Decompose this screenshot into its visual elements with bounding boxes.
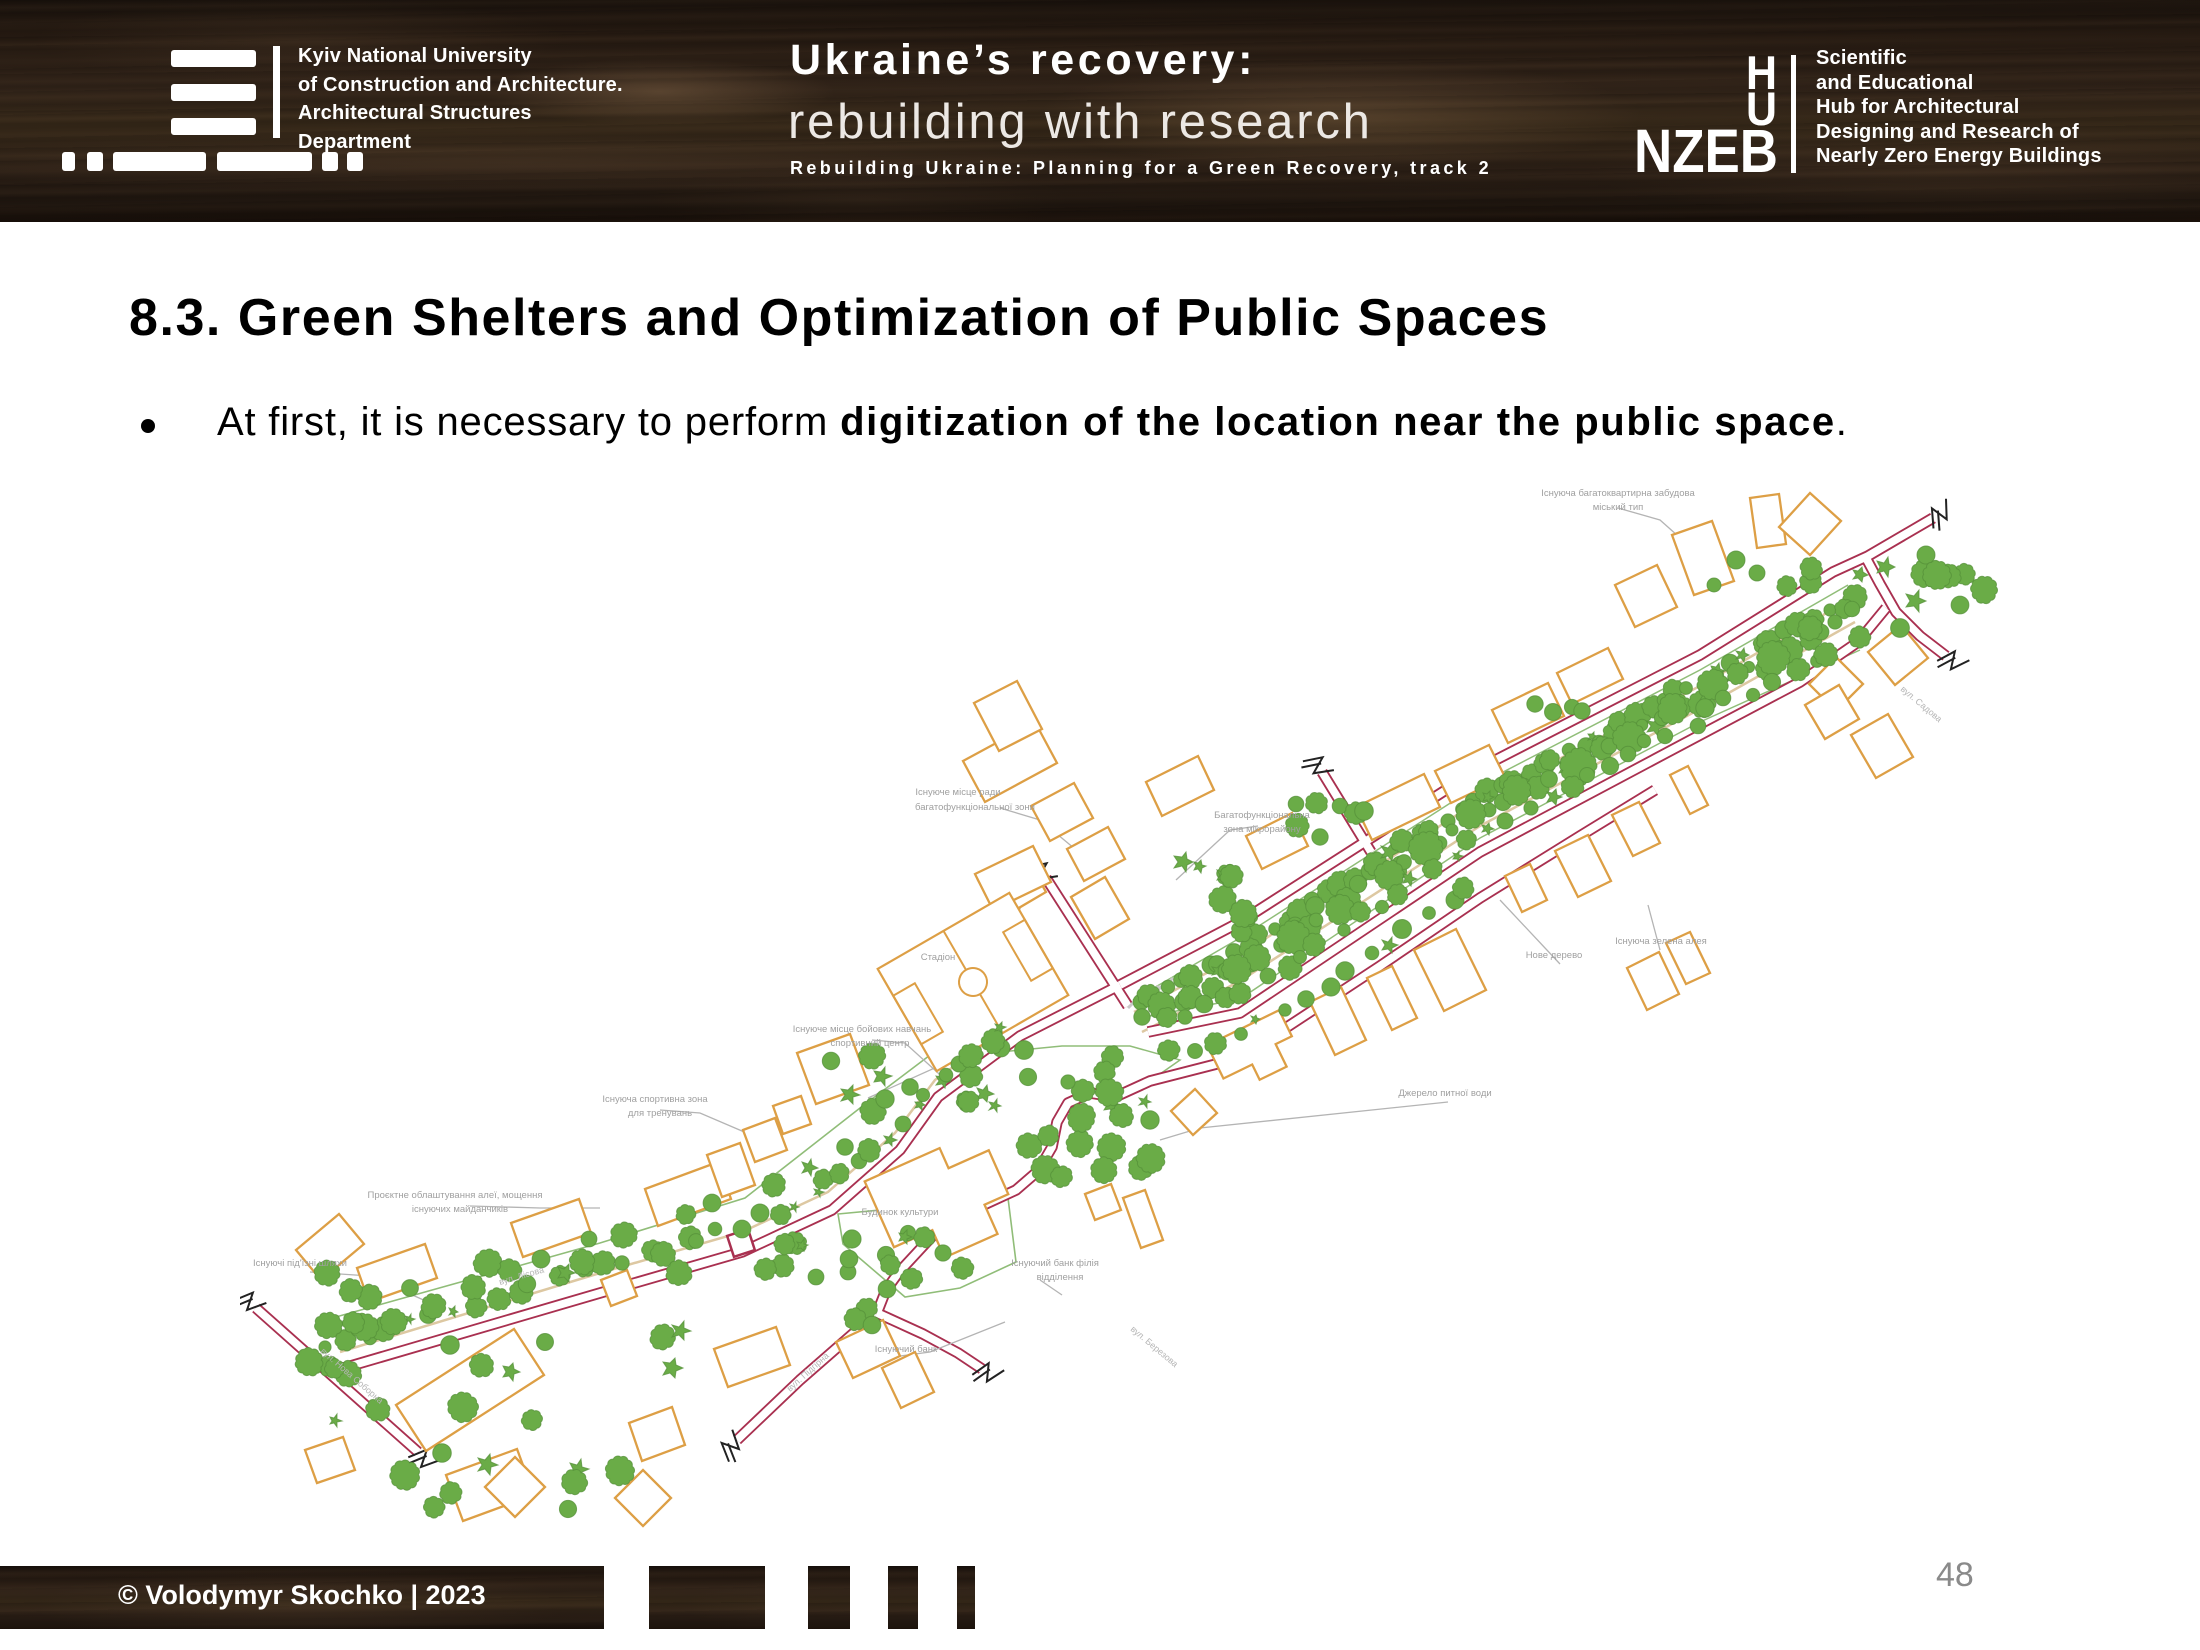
svg-text:вул. Садова: вул. Садова	[1899, 684, 1944, 724]
svg-text:для тренувань: для тренувань	[628, 1108, 692, 1119]
svg-text:міський тип: міський тип	[1593, 502, 1644, 513]
svg-text:Існуючий банк філія: Існуючий банк філія	[1011, 1258, 1099, 1269]
svg-text:Існуючі під'їзні шляхи: Існуючі під'їзні шляхи	[253, 1258, 347, 1269]
svg-text:існуючих майданчиків: існуючих майданчиків	[412, 1204, 508, 1215]
svg-text:вул. Підгірна: вул. Підгірна	[785, 1351, 831, 1394]
svg-text:Існуюче місце ради: Існуюче місце ради	[915, 787, 1000, 798]
svg-text:Нове дерево: Нове дерево	[1526, 950, 1583, 961]
svg-text:Багатофункціональна: Багатофункціональна	[1214, 810, 1310, 821]
svg-text:багатофункціональної зони: багатофункціональної зони	[915, 802, 1035, 813]
svg-text:Існуюче місце бойових навчань: Існуюче місце бойових навчань	[793, 1024, 932, 1035]
svg-text:спортивний центр: спортивний центр	[831, 1038, 910, 1049]
svg-text:Існуюча зелена алея: Існуюча зелена алея	[1615, 936, 1707, 947]
svg-text:Будинок культури: Будинок культури	[862, 1207, 939, 1218]
svg-text:зона мікрорайону: зона мікрорайону	[1223, 824, 1300, 835]
svg-text:Проєктне облаштування алеї, мо: Проєктне облаштування алеї, мощення	[368, 1190, 543, 1201]
svg-text:Джерело питної води: Джерело питної води	[1398, 1088, 1491, 1099]
svg-text:U: U	[1746, 82, 1777, 135]
svg-text:вул. Березова: вул. Березова	[1129, 1324, 1180, 1369]
svg-text:відділення: відділення	[1037, 1272, 1084, 1283]
svg-text:Існуюча багатоквартирна забудо: Існуюча багатоквартирна забудова	[1541, 488, 1695, 499]
svg-text:Існуючий банк: Існуючий банк	[875, 1344, 938, 1355]
svg-text:Стадіон: Стадіон	[921, 952, 956, 963]
svg-text:Існуюча спортивна зона: Існуюча спортивна зона	[602, 1094, 708, 1105]
